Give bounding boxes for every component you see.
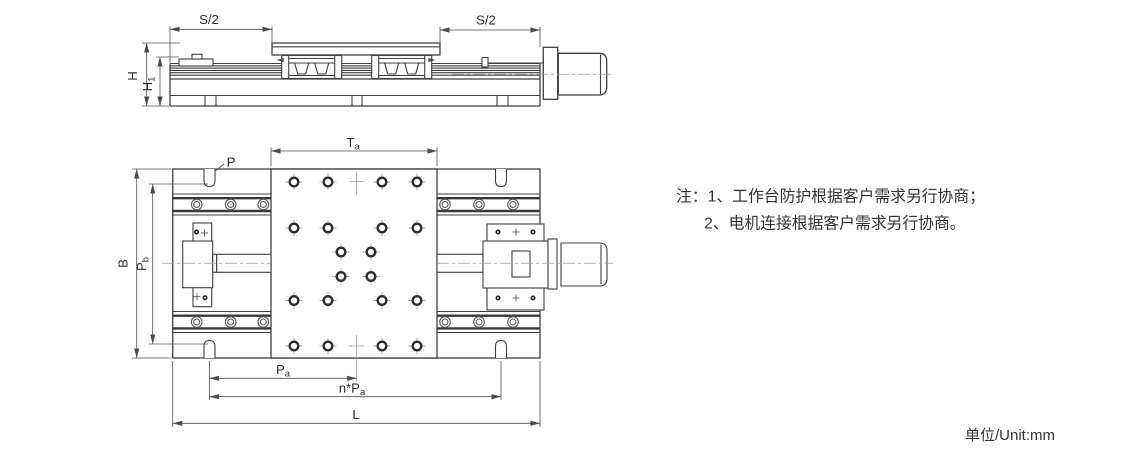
limit-switch <box>179 54 213 66</box>
dim-h1-main: H <box>140 82 155 92</box>
dim-p-label: P <box>227 155 236 170</box>
plan-view: Ta P B Pb Pa <box>116 135 614 427</box>
dim-b-label: B <box>116 259 131 268</box>
linear-stage-technical-drawing: S/2 S/2 H H1 <box>0 0 1143 449</box>
dim-pb-subscript: b <box>141 257 152 262</box>
notes-block: 注：1、工作台防护根据客户需求另行协商； 2、电机连接根据客户需求另行协商。 <box>676 188 985 233</box>
note-line-1: 注：1、工作台防护根据客户需求另行协商； <box>676 188 985 206</box>
dim-ta-main: T <box>346 135 354 150</box>
dim-pa-label: Pa <box>276 362 291 380</box>
dim-ta-subscript: a <box>354 142 360 153</box>
dim-npa-label: n*Pa <box>339 381 366 399</box>
note-line-2: 2、电机连接根据客户需求另行协商。 <box>704 215 966 233</box>
drawing-canvas: S/2 S/2 H H1 <box>0 0 1143 449</box>
dim-h1-label: H1 <box>140 77 158 92</box>
dim-pb-main: P <box>134 262 149 271</box>
dim-h1-subscript: 1 <box>147 77 158 82</box>
base-foot-partitions <box>205 96 508 107</box>
motor-side <box>543 47 606 99</box>
dim-pa-main: P <box>276 362 285 377</box>
carriage-block <box>372 56 432 79</box>
travel-arrow-left <box>277 58 284 62</box>
carriage-block <box>282 56 342 79</box>
dim-npa-subscript: a <box>360 387 366 398</box>
dim-npa-main: n*P <box>339 381 360 396</box>
unit-label: 单位/Unit:mm <box>965 427 1055 444</box>
dim-h-label: H <box>125 71 140 81</box>
table-plate <box>271 169 437 358</box>
table-top-plate <box>272 43 440 55</box>
dim-s2-right-label: S/2 <box>476 13 496 28</box>
dim-ta-label: Ta <box>346 135 360 153</box>
dim-s2-left-label: S/2 <box>199 12 219 27</box>
side-view: S/2 S/2 H H1 <box>125 12 613 106</box>
dim-pa-subscript: a <box>285 369 291 380</box>
dim-l-label: L <box>352 407 359 422</box>
